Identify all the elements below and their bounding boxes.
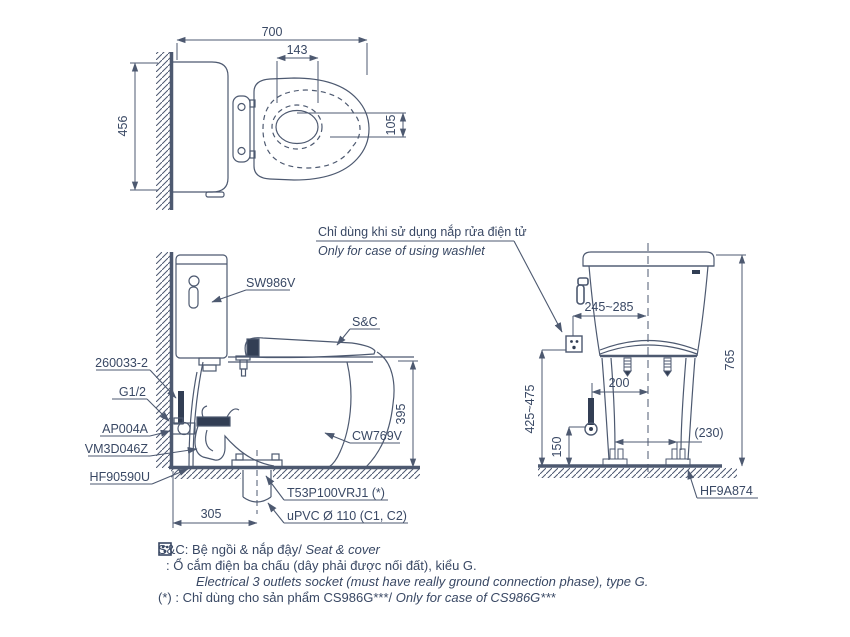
side-view-dimensions xyxy=(173,361,413,528)
dim-143: 143 xyxy=(287,43,308,57)
washlet-note-en: Only for case of using washlet xyxy=(318,244,485,258)
dim-305: 305 xyxy=(201,507,222,521)
note-socket-vi: Ổ cắm điện ba chấu (dây phải được nối đấ… xyxy=(173,558,476,573)
supply-valve-front-view xyxy=(585,398,597,435)
wall-hatch-top-view xyxy=(156,52,171,210)
technical-drawing-page: 700 143 456 105 Chỉ dùng khi sử dụng nắp… xyxy=(0,0,850,637)
top-view: 700 143 456 105 xyxy=(116,25,406,210)
note-asterisk: (*) : Chỉ dùng cho sản phẩm CS986G***/ O… xyxy=(158,590,648,606)
dim-150: 150 xyxy=(550,437,564,458)
label-vm3d046z: VM3D046Z xyxy=(85,442,149,456)
side-view: 395 305 SW986V S&C CW769V 260033-2 G1/2 … xyxy=(85,252,420,528)
label-260033-2: 260033-2 xyxy=(95,356,148,370)
dim-765: 765 xyxy=(723,350,737,371)
note-asterisk-prefix: (*) : xyxy=(158,590,179,605)
label-hf9a874: HF9A874 xyxy=(700,484,753,498)
tank-top-view xyxy=(172,62,228,197)
dim-700: 700 xyxy=(262,25,283,39)
dim-456: 456 xyxy=(116,116,130,137)
note-asterisk-en: Only for case of CS986G*** xyxy=(396,590,556,605)
tank-side-view xyxy=(176,255,227,371)
front-view: 245~285 425~475 150 200 (230) 765 HF9A87… xyxy=(523,243,758,498)
dim-200: 200 xyxy=(609,376,630,390)
label-cw769v: CW769V xyxy=(352,429,403,443)
note-socket-prefix: : xyxy=(166,558,170,573)
note-seat-vi: Bệ ngồi & nắp đậy/ xyxy=(192,542,302,557)
washlet-leader-line xyxy=(514,241,562,332)
trapway-side-view xyxy=(195,406,282,468)
note-socket-en: Electrical 3 outlets socket (must have r… xyxy=(158,574,648,590)
dim-425-475: 425~475 xyxy=(523,384,537,433)
label-upvc: uPVC Ø 110 (C1, C2) xyxy=(287,509,407,523)
label-g12: G1/2 xyxy=(119,385,146,399)
label-sw986v: SW986V xyxy=(246,276,296,290)
label-hf90590u: HF90590U xyxy=(90,470,150,484)
seat-hinge-top-view xyxy=(233,96,255,162)
dim-105: 105 xyxy=(384,115,398,136)
dim-395: 395 xyxy=(394,404,408,425)
label-ap004a: AP004A xyxy=(102,422,149,436)
washlet-note-vi: Chỉ dùng khi sử dụng nắp rửa điện tử xyxy=(318,224,527,239)
socket-icon xyxy=(158,542,172,556)
label-t53p100vrj1: T53P100VRJ1 (*) xyxy=(287,486,385,500)
note-seat-cover: S&C: Bệ ngồi & nắp đậy/ Seat & cover xyxy=(158,542,648,558)
label-sc: S&C xyxy=(352,315,378,329)
note-asterisk-vi: Chỉ dùng cho sản phẩm CS986G***/ xyxy=(183,590,393,605)
wall-hatch-side-view xyxy=(156,252,171,468)
note-seat-en: Seat & cover xyxy=(305,542,379,557)
note-socket: : Ổ cắm điện ba chấu (dây phải được nối … xyxy=(158,558,648,574)
dim-245-285: 245~285 xyxy=(584,300,633,314)
dim-230: (230) xyxy=(694,426,723,440)
socket-icon xyxy=(566,336,582,352)
footnotes: S&C: Bệ ngồi & nắp đậy/ Seat & cover : Ổ… xyxy=(158,542,648,606)
bowl-side-view xyxy=(189,352,418,467)
